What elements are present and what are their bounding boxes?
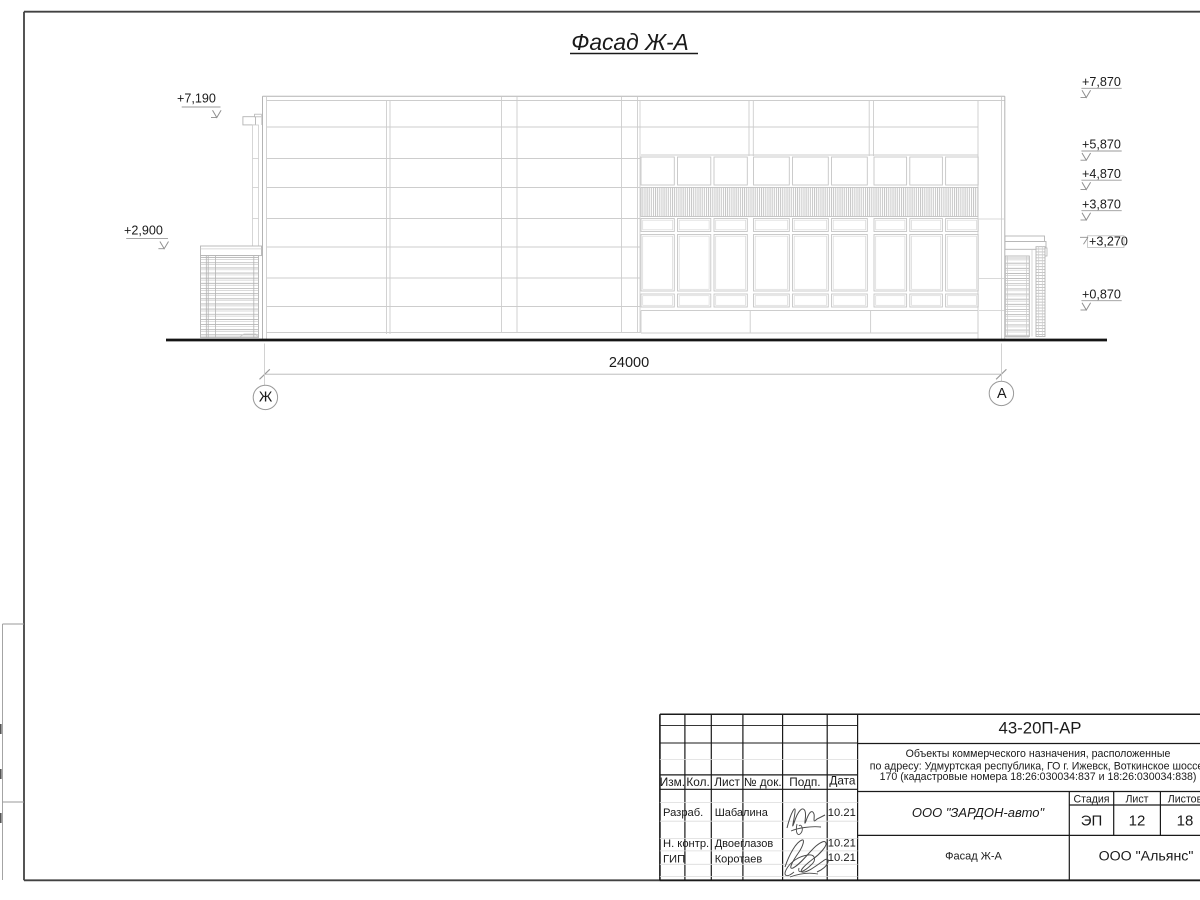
svg-text:Ж: Ж <box>259 390 273 406</box>
svg-text:ЭП: ЭП <box>1081 813 1103 830</box>
svg-text:Листов: Листов <box>1168 794 1200 806</box>
svg-text:Объекты коммерческого назначен: Объекты коммерческого назначения, распол… <box>906 748 1171 760</box>
svg-text:Подп.: Подп. <box>789 775 820 789</box>
svg-text:12: 12 <box>1129 813 1146 830</box>
svg-text:Изм.: Изм. <box>660 775 685 789</box>
svg-text:+4,870: +4,870 <box>1082 167 1121 181</box>
svg-text:Разраб.: Разраб. <box>663 807 703 819</box>
svg-text:10.21: 10.21 <box>828 838 856 850</box>
svg-text:Шабалина: Шабалина <box>715 807 769 819</box>
svg-text:18: 18 <box>1177 813 1194 830</box>
svg-text:Дата: Дата <box>829 774 856 788</box>
svg-text:24000: 24000 <box>609 355 649 371</box>
svg-text:Лист: Лист <box>714 775 740 789</box>
svg-text:ООО "Альянс": ООО "Альянс" <box>1099 849 1194 865</box>
svg-text:Фасад Ж-А: Фасад Ж-А <box>945 851 1002 863</box>
svg-text:Кол.: Кол. <box>686 775 709 789</box>
svg-text:+3,870: +3,870 <box>1082 197 1121 211</box>
svg-text:+7,870: +7,870 <box>1082 75 1121 89</box>
svg-text:+5,870: +5,870 <box>1082 138 1121 152</box>
svg-text:ГИП: ГИП <box>663 854 685 866</box>
svg-text:+7,190: +7,190 <box>177 92 216 106</box>
svg-text:43-20П-АР: 43-20П-АР <box>999 719 1082 738</box>
svg-text:Лист: Лист <box>1125 794 1148 806</box>
svg-text:Фасад Ж-А: Фасад Ж-А <box>571 29 689 55</box>
svg-text:10.21: 10.21 <box>828 852 856 864</box>
svg-text:Стадия: Стадия <box>1073 794 1109 806</box>
svg-text:+0,870: +0,870 <box>1082 287 1121 301</box>
svg-text:Двоеглазов: Двоеглазов <box>715 838 774 850</box>
svg-text:+3,270: +3,270 <box>1089 234 1128 248</box>
svg-text:ООО "ЗАРДОН-авто": ООО "ЗАРДОН-авто" <box>912 805 1046 820</box>
svg-text:10.21: 10.21 <box>828 807 856 819</box>
svg-text:Коротаев: Коротаев <box>715 854 763 866</box>
svg-text:Н. контр.: Н. контр. <box>663 838 709 850</box>
svg-text:170 (кадастровые номера 18:26:: 170 (кадастровые номера 18:26:030034:837… <box>880 771 1197 783</box>
svg-text:+2,900: +2,900 <box>124 224 163 238</box>
svg-text:А: А <box>997 386 1007 402</box>
svg-text:№ док.: № док. <box>744 775 782 789</box>
